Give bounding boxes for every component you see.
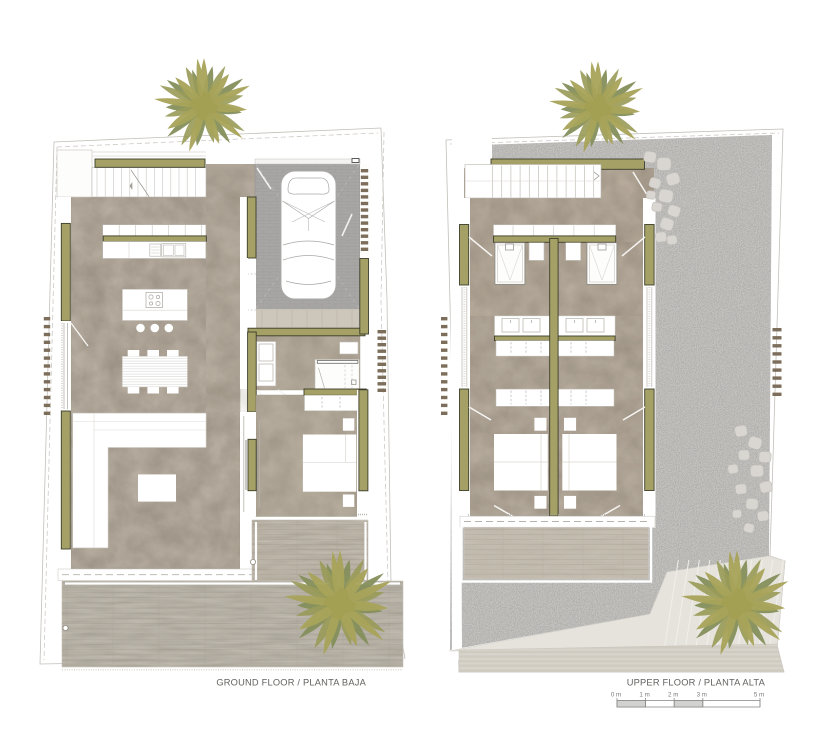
svg-text:1 m: 1 m xyxy=(639,692,649,699)
svg-text:3 m: 3 m xyxy=(697,692,707,699)
svg-text:5 m: 5 m xyxy=(754,692,764,699)
svg-text:2 m: 2 m xyxy=(668,692,678,699)
svg-text:GROUND FLOOR / PLANTA BAJA: GROUND FLOOR / PLANTA BAJA xyxy=(216,678,366,688)
svg-text:0 m: 0 m xyxy=(611,692,621,699)
svg-text:UPPER FLOOR / PLANTA ALTA: UPPER FLOOR / PLANTA ALTA xyxy=(627,678,766,688)
